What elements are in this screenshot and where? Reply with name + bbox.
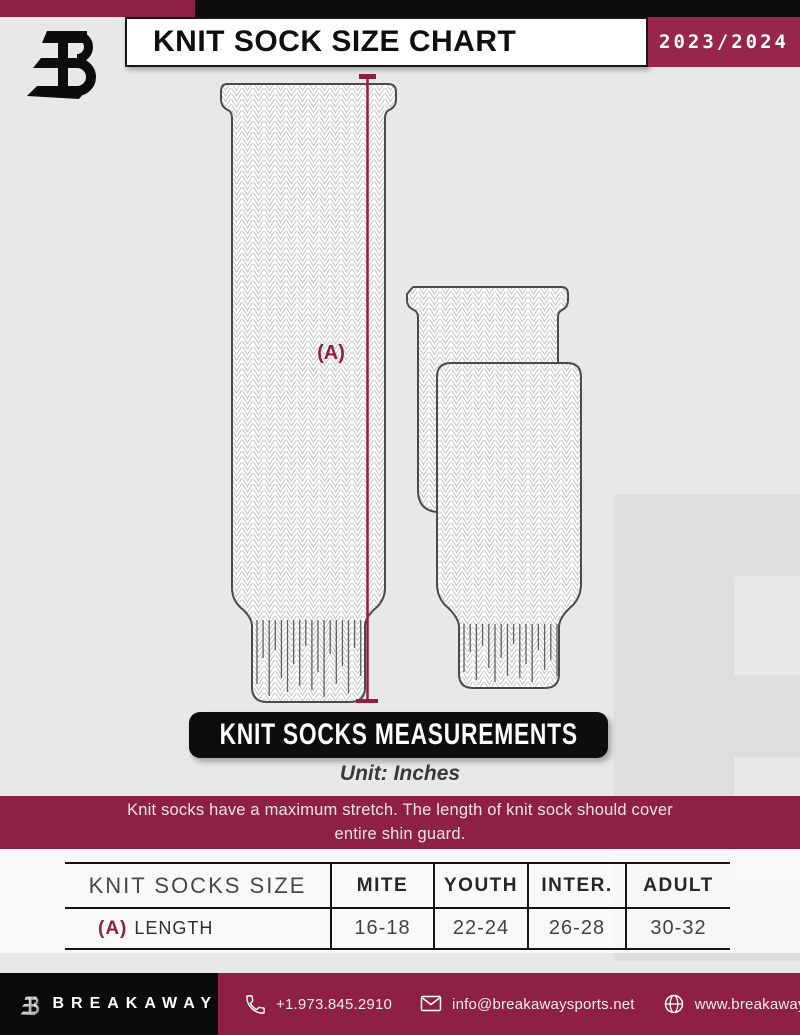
table-data-row: (A)LENGTH 16-18 22-24 26-28 30-32 bbox=[65, 909, 730, 948]
cell-value: 30-32 bbox=[650, 917, 706, 940]
col-label: YOUTH bbox=[444, 875, 518, 897]
measurement-label: (A) bbox=[317, 342, 345, 364]
cell-value: 26-28 bbox=[549, 917, 605, 940]
envelope-icon bbox=[419, 992, 443, 1016]
length-value-youth: 22-24 bbox=[433, 909, 527, 948]
cell-value: 22-24 bbox=[453, 917, 509, 940]
brand-name: BREAKAWAY bbox=[52, 995, 218, 1013]
measurement-bottom-cap bbox=[356, 699, 378, 703]
length-value-inter: 26-28 bbox=[527, 909, 625, 948]
length-value-mite: 16-18 bbox=[330, 909, 433, 948]
length-row-label-cell: (A)LENGTH bbox=[65, 909, 330, 948]
footer-contact: +1.973.845.2910 info@breakawaysports.net… bbox=[218, 973, 800, 1035]
table-col-youth: YOUTH bbox=[433, 864, 527, 907]
length-row-a-prefix: (A) bbox=[98, 918, 127, 939]
unit-label: Unit: Inches bbox=[0, 762, 800, 786]
sock-diagram: (A) bbox=[0, 0, 800, 760]
stretch-note-line-1: Knit socks have a maximum stretch. The l… bbox=[127, 799, 673, 823]
size-chart-page: B KNIT SOCK SIZE CHART 2023/2024 bbox=[0, 0, 800, 1035]
length-value-adult: 30-32 bbox=[625, 909, 730, 948]
table-col-mite: MITE bbox=[330, 864, 433, 907]
col-label: MITE bbox=[357, 875, 408, 897]
email-item: info@breakawaysports.net bbox=[419, 992, 635, 1016]
table-size-header: KNIT SOCKS SIZE bbox=[89, 873, 307, 899]
phone-number: +1.973.845.2910 bbox=[276, 996, 392, 1013]
measurements-banner-label: KNIT SOCKS MEASUREMENTS bbox=[219, 718, 577, 752]
table-size-header-cell: KNIT SOCKS SIZE bbox=[65, 864, 330, 907]
col-label: ADULT bbox=[643, 875, 713, 897]
table-col-inter: INTER. bbox=[527, 864, 625, 907]
stretch-note: Knit socks have a maximum stretch. The l… bbox=[0, 796, 800, 849]
phone-icon bbox=[244, 993, 267, 1016]
length-row-label: LENGTH bbox=[134, 918, 213, 938]
table-header-row: KNIT SOCKS SIZE MITE YOUTH INTER. ADULT bbox=[65, 864, 730, 909]
front-sock bbox=[437, 363, 581, 688]
measurement-top-cap bbox=[359, 74, 376, 79]
size-table: KNIT SOCKS SIZE MITE YOUTH INTER. ADULT … bbox=[65, 862, 730, 950]
cell-value: 16-18 bbox=[354, 917, 410, 940]
col-label: INTER. bbox=[541, 875, 612, 897]
stretch-note-line-2: entire shin guard. bbox=[334, 823, 465, 847]
phone-item: +1.973.845.2910 bbox=[244, 993, 392, 1016]
footer-brand-block: BREAKAWAY bbox=[0, 973, 218, 1035]
table-col-adult: ADULT bbox=[625, 864, 730, 907]
measurements-banner: KNIT SOCKS MEASUREMENTS bbox=[189, 712, 608, 758]
globe-icon bbox=[662, 992, 686, 1016]
website-item: www.breakawaysports.net bbox=[662, 992, 800, 1016]
website-url: www.breakawaysports.net bbox=[695, 996, 800, 1013]
long-sock bbox=[221, 84, 396, 702]
breakaway-b-logo-footer-icon bbox=[17, 981, 44, 1027]
footer: BREAKAWAY +1.973.845.2910 info@breakaway… bbox=[0, 973, 800, 1035]
email-address: info@breakawaysports.net bbox=[452, 996, 635, 1013]
